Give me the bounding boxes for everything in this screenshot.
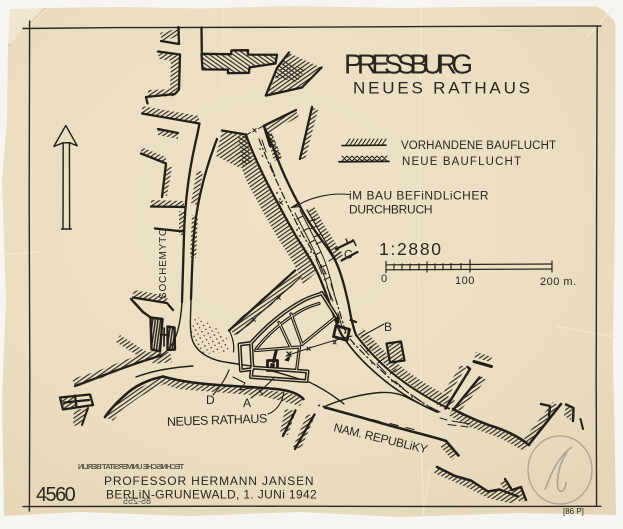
- svg-text:85-255: 85-255: [123, 496, 151, 506]
- svg-text:0: 0: [381, 273, 387, 285]
- svg-text:[86 P]: [86 P]: [563, 507, 584, 516]
- svg-text:TECHNISCHE UNIVERSITAT BERLIN: TECHNISCHE UNIVERSITAT BERLIN: [78, 462, 184, 471]
- svg-text:4560: 4560: [36, 484, 77, 506]
- svg-text:B: B: [384, 320, 392, 334]
- svg-text:SOCHEMYTO: SOCHEMYTO: [158, 228, 169, 299]
- svg-text:PROFESSOR HERMANN JANSEN: PROFESSOR HERMANN JANSEN: [104, 474, 314, 488]
- svg-text:C: C: [344, 248, 353, 262]
- svg-text:D: D: [206, 393, 215, 407]
- svg-text:A: A: [243, 396, 251, 410]
- svg-text:iM BAU BEFiNDLiCHER: iM BAU BEFiNDLiCHER: [349, 189, 489, 203]
- svg-text:200 m.: 200 m.: [540, 276, 577, 288]
- svg-text:VORHANDENE BAUFLUCHT: VORHANDENE BAUFLUCHT: [401, 140, 557, 152]
- svg-text:PRESSBURG: PRESSBURG: [344, 49, 474, 80]
- svg-text:DURCHBRUCH: DURCHBRUCH: [349, 203, 433, 217]
- svg-text:NEUES RATHAUS: NEUES RATHAUS: [353, 79, 534, 98]
- svg-text:100: 100: [455, 275, 475, 287]
- svg-text:NEUE BAUFLUCHT: NEUE BAUFLUCHT: [402, 156, 522, 168]
- svg-text:1:2880: 1:2880: [379, 239, 442, 259]
